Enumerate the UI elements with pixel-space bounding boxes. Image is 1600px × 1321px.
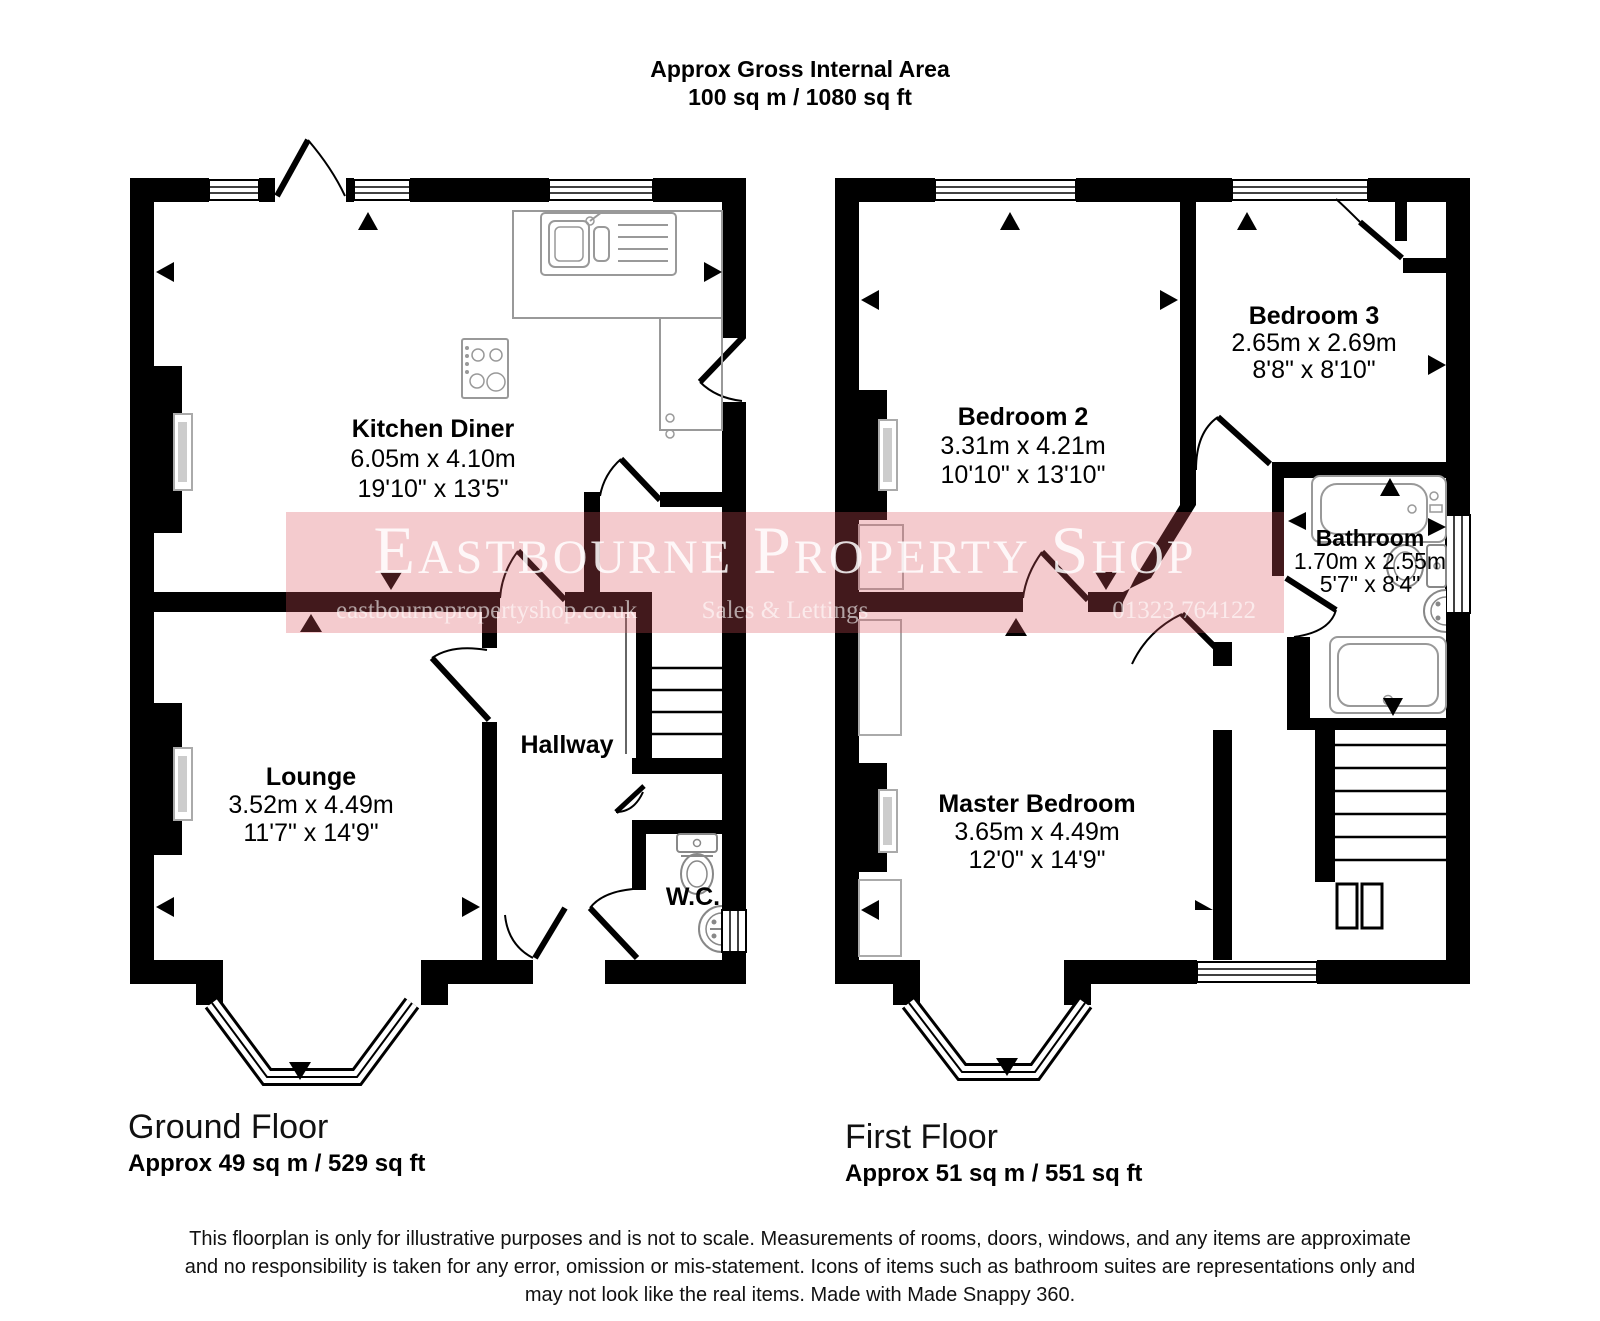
door-icon	[600, 459, 660, 500]
disclaimer-line2: and no responsibility is taken for any e…	[0, 1256, 1600, 1279]
first-floor-label: First Floor	[845, 1118, 998, 1157]
watermark-banner: Eastbourne Property Shop eastbourneprope…	[286, 512, 1284, 633]
door-icon	[505, 889, 637, 958]
ground-floor-area: Approx 49 sq m / 529 sq ft	[128, 1150, 425, 1178]
room-dim-master-metric: 3.65m x 4.49m	[954, 818, 1119, 846]
room-dim-master-imperial: 12'0" x 14'9"	[968, 846, 1105, 874]
room-label-lounge: Lounge	[266, 763, 356, 791]
first-floor-area: Approx 51 sq m / 551 sq ft	[845, 1160, 1142, 1188]
room-dim-bathroom-imperial: 5'7" x 8'4"	[1320, 571, 1421, 597]
room-dim-kitchen-imperial: 19'10" x 13'5"	[357, 475, 508, 503]
watermark-brand: Eastbourne Property Shop	[286, 516, 1284, 584]
ground-floor-label: Ground Floor	[128, 1108, 328, 1147]
staircase	[1315, 727, 1446, 928]
room-label-bedroom3: Bedroom 3	[1249, 302, 1380, 330]
window-icon	[722, 910, 746, 952]
window-icon	[1446, 515, 1470, 613]
room-label-master: Master Bedroom	[938, 790, 1135, 818]
door-icon	[277, 140, 345, 196]
disclaimer-line1: This floorplan is only for illustrative …	[0, 1228, 1600, 1251]
room-dim-bedroom3-metric: 2.65m x 2.69m	[1231, 329, 1396, 357]
staircase	[626, 612, 722, 774]
door-icon	[616, 786, 644, 812]
bay-window-icon	[196, 960, 448, 1077]
room-dim-bedroom2-metric: 3.31m x 4.21m	[940, 432, 1105, 460]
hob-icon	[462, 339, 508, 398]
room-label-bedroom2: Bedroom 2	[958, 403, 1089, 431]
room-dim-bedroom2-imperial: 10'10" x 13'10"	[941, 461, 1106, 489]
room-dim-kitchen-metric: 6.05m x 4.10m	[350, 445, 515, 473]
window-icon	[1197, 962, 1317, 982]
watermark-phone: 01323 764122	[1112, 597, 1256, 625]
room-label-hallway: Hallway	[520, 731, 613, 759]
door-icon	[1196, 417, 1270, 470]
door-icon	[1336, 199, 1402, 258]
basin-icon	[699, 906, 722, 952]
room-dim-lounge-metric: 3.52m x 4.49m	[228, 791, 393, 819]
room-dim-bedroom3-imperial: 8'8" x 8'10"	[1252, 356, 1375, 384]
bay-window-icon	[893, 960, 1091, 1072]
room-dim-lounge-imperial: 11'7" x 14'9"	[243, 819, 378, 847]
basin-icon	[1424, 590, 1446, 632]
door-icon	[432, 648, 489, 720]
sink-icon	[541, 212, 676, 275]
floorplan-page: Approx Gross Internal Area 100 sq m / 10…	[0, 0, 1600, 1321]
room-label-kitchen: Kitchen Diner	[352, 415, 515, 443]
disclaimer-line3: may not look like the real items. Made w…	[0, 1284, 1600, 1307]
room-label-wc: W.C.	[666, 883, 720, 911]
